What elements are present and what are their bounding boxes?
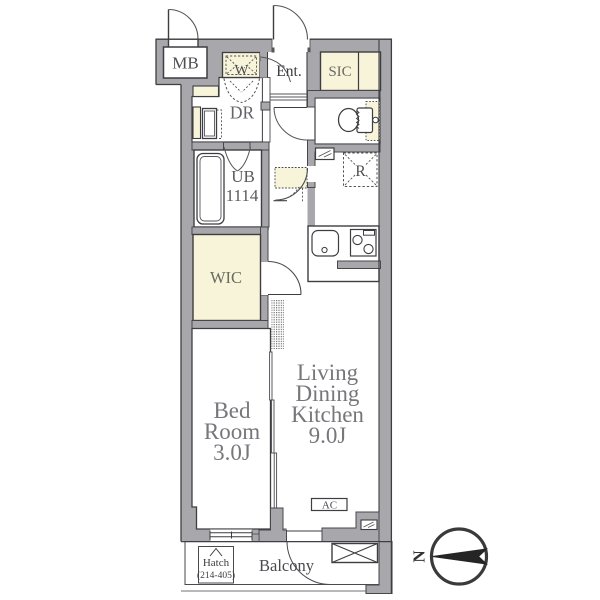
svg-text:SIC: SIC [328, 64, 351, 80]
svg-text:N: N [409, 550, 428, 563]
svg-text:Balcony: Balcony [259, 556, 315, 575]
svg-text:WIC: WIC [210, 268, 242, 287]
svg-text:AC: AC [322, 500, 337, 512]
svg-text:Hatch: Hatch [203, 557, 230, 569]
svg-text:UB: UB [231, 167, 255, 186]
svg-text:1114: 1114 [226, 186, 259, 205]
svg-text:W: W [234, 63, 249, 79]
svg-text:MB: MB [172, 54, 198, 73]
svg-text:(214-405): (214-405) [197, 570, 235, 581]
svg-text:R: R [355, 163, 366, 180]
svg-text:DR: DR [230, 103, 255, 123]
svg-text:3.0J: 3.0J [213, 440, 251, 465]
svg-text:9.0J: 9.0J [309, 423, 347, 448]
